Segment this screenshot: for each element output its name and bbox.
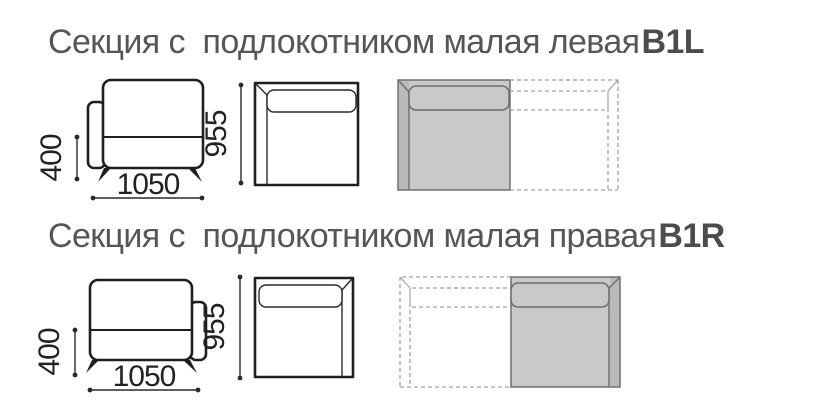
footprint-b1l [398,80,618,190]
ghost-armrest-corner [608,80,618,108]
footprint-back-cushion [511,283,609,307]
section-title-text: Секция с подлокотником малая правая [48,217,656,255]
section-title-text: Секция с подлокотником малая левая [48,23,639,61]
dim-label-955: 955 [200,110,233,157]
footprint-armrest-strip [610,278,619,386]
front-view-b1l [88,80,203,182]
section-code-b1l: B1L [641,23,703,61]
leg-left [98,168,111,182]
section-title-b1r: Секция с подлокотником малая праваяB1R [48,218,725,255]
dim-seat-height-b1l: 400 [35,134,79,181]
dim-depth-b1l: 955 [200,83,243,186]
ghost-cushion-lines [412,288,511,307]
back-cushion [259,285,342,307]
footprint-armrest-strip [399,81,409,189]
section-title-b1l: Секция с подлокотником малая леваяB1L [48,24,704,61]
dim-label-955: 955 [198,303,231,350]
sofa-body [103,80,203,168]
dim-depth-b1r: 955 [198,275,242,381]
spec-sheet: Секция с подлокотником малая леваяB1L 40… [0,0,840,420]
drawings-row-b1r: 400 1050 955 [40,265,660,400]
leg-right [183,360,197,373]
drawings-row-b1l: 400 1050 955 [40,70,660,210]
dim-label-1050: 1050 [117,168,180,201]
ghost-cushion-lines [510,91,606,110]
footprint-back-cushion [409,86,509,110]
ghost-armrest-corner [400,277,410,303]
section-code-b1r: B1R [658,217,724,255]
plan-view-b1r [255,278,353,377]
leg-left [86,360,99,373]
footprint-b1r [400,277,620,387]
dim-width-b1l: 1050 [91,168,205,201]
back-cushion [267,90,356,112]
plan-view-b1l [255,83,358,185]
sofa-body [90,280,192,360]
dim-label-1050: 1050 [113,360,176,393]
dim-width-b1r: 1050 [88,360,201,393]
ghost-outline [510,80,618,190]
dim-label-400: 400 [35,134,68,181]
dim-seat-height-b1r: 400 [33,328,77,378]
leg-right [188,168,202,182]
dim-label-400: 400 [33,328,66,375]
ghost-outline [400,277,511,387]
